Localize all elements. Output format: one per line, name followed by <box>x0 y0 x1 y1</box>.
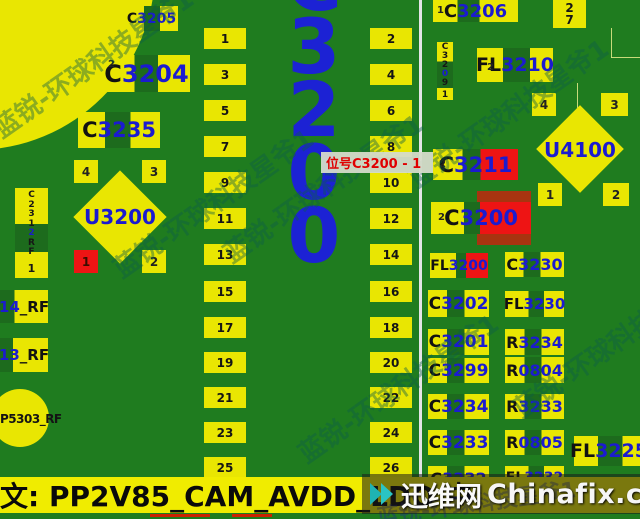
ref-prefix: R <box>506 397 518 416</box>
connector-pin-2[interactable]: 2 <box>370 28 412 49</box>
connector-pin-3[interactable]: 3 <box>204 64 246 85</box>
component-C3211-highlighted[interactable]: 2 C3211 <box>433 149 518 180</box>
component-C3204[interactable]: 2 C3204 <box>103 55 190 92</box>
component-R3233[interactable]: R3233 <box>505 394 564 419</box>
component-R0805[interactable]: R0805 <box>505 430 564 455</box>
ref-vertical-text: C231 <box>27 191 37 229</box>
pad-number: 1 <box>440 90 450 100</box>
connector-pin-13[interactable]: 13 <box>204 244 246 265</box>
ref-digits: 3200 <box>459 206 517 230</box>
component-FL3200[interactable]: FL3200 <box>430 253 488 278</box>
ref-digits: 3202 <box>441 294 488 314</box>
region-border-line <box>611 28 612 58</box>
ref-digits: 3299 <box>441 361 488 381</box>
testpoint-P5303-RF-label: P5303_RF <box>0 412 62 426</box>
ref-digits: 3230 <box>524 295 566 313</box>
U3200-pad-1-highlighted[interactable]: 1 <box>74 250 98 273</box>
connector-pin-22[interactable]: 22 <box>370 387 412 408</box>
ref-prefix: C <box>429 397 441 417</box>
pad-number: 2 <box>487 62 494 73</box>
pad-number: 3 <box>610 98 618 112</box>
ref-prefix: FL <box>504 295 524 313</box>
pad-number: 4 <box>82 165 90 179</box>
component-R3234[interactable]: R3234 <box>505 329 564 355</box>
ref-digits: 3225 <box>595 440 640 462</box>
ref-digits: 14 <box>0 298 20 316</box>
component-pad-27[interactable]: 2 7 <box>553 0 586 28</box>
ref-digits: 13 <box>0 346 20 364</box>
ref-vertical-text: C32 <box>440 43 450 70</box>
connector-pin-1[interactable]: 1 <box>204 28 246 49</box>
U4100-pad-3[interactable]: 3 <box>601 93 628 116</box>
ref-digits: 3233 <box>441 433 488 453</box>
ref-prefix: FL <box>570 440 595 462</box>
ref-prefix: C <box>429 294 441 314</box>
small-pad <box>6 0 21 12</box>
component-R0804[interactable]: R0804 <box>505 357 564 383</box>
ref-digits: 0805 <box>518 433 563 452</box>
ref-digits: 3230 <box>518 255 563 274</box>
connector-pin-6[interactable]: 6 <box>370 100 412 121</box>
board-strip-mark <box>232 514 272 517</box>
pad-number: 7 <box>565 14 575 26</box>
U4100-pad-4[interactable]: 4 <box>532 93 556 116</box>
component-U4100-label: U4100 <box>545 138 615 162</box>
pad-number: 2 <box>612 188 620 202</box>
connector-pin-15[interactable]: 15 <box>204 281 246 302</box>
connector-pin-14[interactable]: 14 <box>370 244 412 265</box>
component-U3200-label: U3200 <box>85 205 155 229</box>
pad-number: 2 <box>150 255 158 269</box>
connector-pin-12[interactable]: 12 <box>370 208 412 229</box>
connector-pin-7[interactable]: 7 <box>204 136 246 157</box>
connector-pin-23[interactable]: 23 <box>204 422 246 443</box>
component-C3299[interactable]: C3299 <box>428 358 489 383</box>
connector-pin-21[interactable]: 21 <box>204 387 246 408</box>
ref-prefix: C <box>127 11 137 27</box>
connector-pin-9[interactable]: 9 <box>204 172 246 193</box>
component-C3235[interactable]: C3235 <box>78 112 160 148</box>
component-C3234[interactable]: C3234 <box>428 394 489 419</box>
ref-prefix: R <box>506 433 518 452</box>
ref-digits: 3234 <box>518 333 563 352</box>
site-watermark-en: Chinafix.com <box>487 479 640 510</box>
boardview-canvas[interactable]: C3200 C3205 2 C3204 C3235 U3200 4 3 1 2 … <box>0 0 640 519</box>
pad-number: 1 <box>546 188 554 202</box>
connector-pin-11[interactable]: 11 <box>204 208 246 229</box>
ref-digits: 3211 <box>454 153 512 177</box>
ref-digits: 0804 <box>518 361 563 380</box>
ref-digits: 3200 <box>449 258 488 274</box>
component-FL3230[interactable]: FL3230 <box>505 291 564 317</box>
component-14-RF[interactable]: 14_RF <box>0 290 48 323</box>
ref-digits: 3204 <box>122 60 189 88</box>
U4100-pad-1[interactable]: 1 <box>538 183 562 206</box>
component-C3202[interactable]: C3202 <box>428 290 489 317</box>
ref-digits: 3235 <box>97 118 155 142</box>
component-FL3225[interactable]: FL3225 <box>574 436 640 466</box>
component-C3230[interactable]: C3230 <box>505 252 564 277</box>
pad-number: 3 <box>150 165 158 179</box>
pad-number: 2 <box>108 59 115 70</box>
pad-number: 4 <box>540 98 548 112</box>
component-C3200-highlighted[interactable]: 2 C3200 <box>431 202 531 234</box>
ref-vertical-text: 9 <box>440 79 450 88</box>
ref-prefix: C <box>82 118 97 142</box>
ref-prefix: FL <box>430 258 448 274</box>
component-C2312-RF[interactable]: C231 2 RF 1 <box>15 188 48 278</box>
U3200-pad-4[interactable]: 4 <box>74 160 98 183</box>
component-C3209[interactable]: C32 0 9 1 <box>437 42 453 100</box>
pad-number: 2 <box>438 212 445 223</box>
ref-prefix: C <box>429 332 441 352</box>
ref-prefix: C <box>506 255 518 274</box>
ref-prefix: C <box>429 433 441 453</box>
board-strip-mark <box>150 514 210 517</box>
ref-prefix: R <box>506 361 518 380</box>
fast-forward-icon <box>368 480 396 508</box>
pad-number: 1 <box>82 255 90 269</box>
ref-prefix: C <box>444 1 457 22</box>
pad-number: 2 <box>439 159 446 170</box>
ref-digits: 3206 <box>457 1 507 22</box>
connector-pin-4[interactable]: 4 <box>370 64 412 85</box>
component-C3206[interactable]: 1 C3206 <box>433 0 518 22</box>
pad-number: 1 <box>437 5 444 16</box>
U4100-pad-2[interactable]: 2 <box>603 183 629 206</box>
connector-pin-18[interactable]: 18 <box>370 317 412 338</box>
U3200-pad-2[interactable]: 2 <box>142 250 166 273</box>
connector-pin-16[interactable]: 16 <box>370 281 412 302</box>
position-tooltip: 位号C3200 - 1 <box>321 152 433 173</box>
ref-suffix: _RF <box>20 298 49 316</box>
ref-prefix: C <box>429 361 441 381</box>
ref-suffix: _RF <box>20 346 49 364</box>
component-C3233[interactable]: C3233 <box>428 430 489 455</box>
ref-digits: 3205 <box>137 11 176 27</box>
site-watermark-zh: 迅维网 <box>401 475 482 514</box>
big-ref-label-C3200: C3200 <box>283 0 345 267</box>
component-13-RF[interactable]: 13_RF <box>0 338 48 372</box>
pad-number: 1 <box>27 264 37 274</box>
component-C3201[interactable]: C3201 <box>428 329 489 355</box>
connector-pin-10[interactable]: 10 <box>370 172 412 193</box>
ref-digits: 3201 <box>441 332 488 352</box>
ref-prefix: C <box>444 206 459 230</box>
connector-pin-17[interactable]: 17 <box>204 317 246 338</box>
ref-digits: 3210 <box>501 54 554 76</box>
ref-digits: 3234 <box>441 397 488 417</box>
component-C3205[interactable]: C3205 <box>125 6 178 31</box>
connector-pin-20[interactable]: 20 <box>370 352 412 373</box>
ref-digits: 3233 <box>518 397 563 416</box>
ref-prefix: R <box>506 333 518 352</box>
connector-pin-19[interactable]: 19 <box>204 352 246 373</box>
component-FL3210[interactable]: 2 FL3210 <box>477 48 553 82</box>
region-border-line <box>611 57 640 58</box>
region-divider-line <box>419 0 422 477</box>
ref-vertical-text: RF <box>27 239 37 258</box>
connector-pin-5[interactable]: 5 <box>204 100 246 121</box>
site-watermark-badge: 迅维网 Chinafix.com <box>362 474 640 514</box>
U3200-pad-3[interactable]: 3 <box>142 160 166 183</box>
connector-pin-24[interactable]: 24 <box>370 422 412 443</box>
